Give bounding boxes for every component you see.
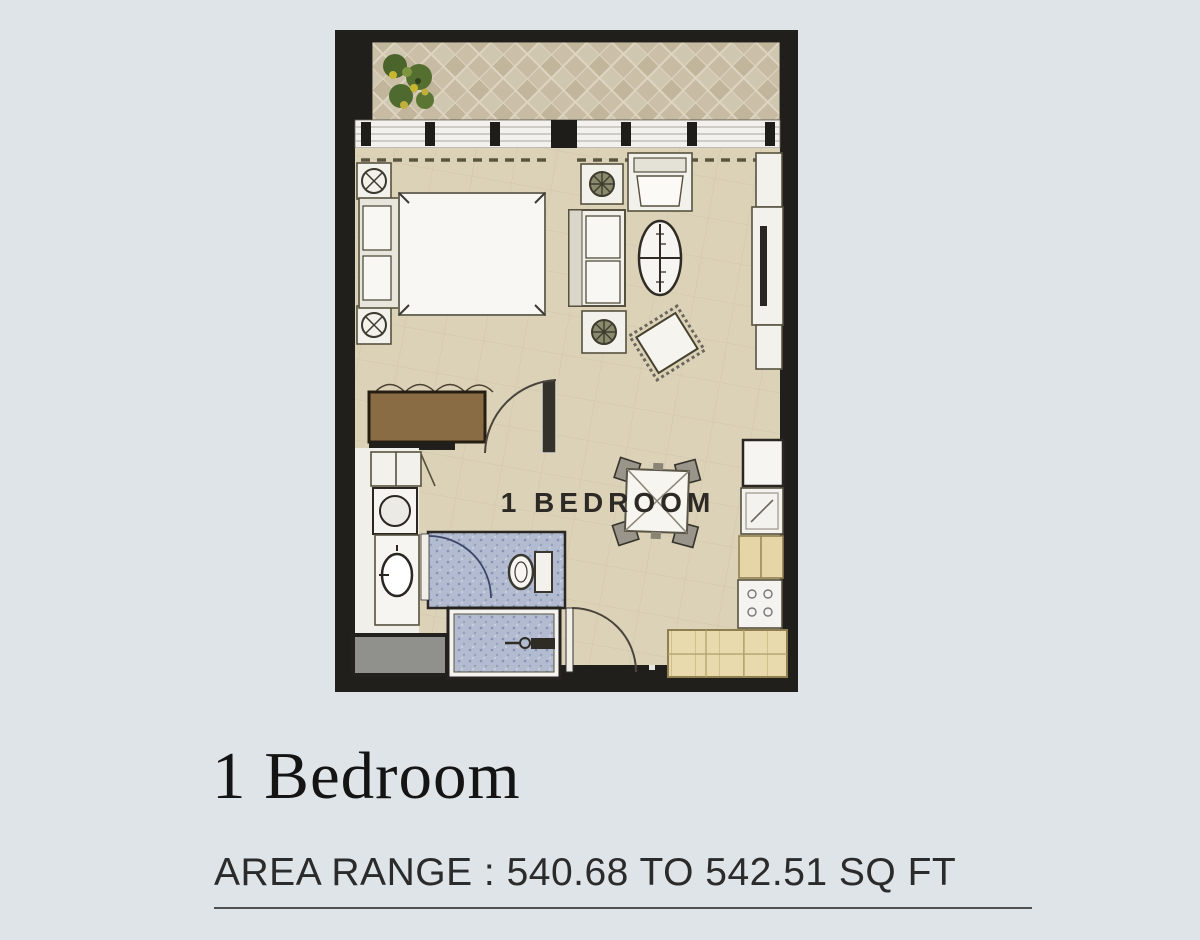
bed (399, 193, 545, 315)
armchair (628, 153, 692, 211)
wardrobe (369, 385, 493, 451)
pillow (363, 256, 391, 300)
washing-machine (373, 488, 417, 534)
unit-title: 1 Bedroom (212, 740, 521, 814)
kitchen-sink (741, 488, 783, 534)
plan-room-label: 1 BEDROOM (501, 487, 716, 518)
kitchen-counter (668, 630, 787, 677)
shower-room (448, 608, 560, 678)
plant-icon (591, 319, 617, 345)
balcony (372, 42, 780, 120)
brochure-page: 1 BEDROOM 1 Bedroom AREA RANGE : 540.68 … (0, 0, 1200, 940)
sofa (569, 210, 625, 306)
service-unit (353, 635, 447, 675)
cooktop (738, 580, 782, 628)
area-range-text: AREA RANGE : 540.68 TO 542.51 SQ FT (214, 851, 956, 895)
window-wall (355, 120, 780, 148)
plant-icon (589, 171, 615, 197)
tv-unit (752, 153, 783, 369)
bathroom (421, 532, 565, 608)
wash-basin (375, 535, 419, 625)
pillow (363, 206, 391, 250)
divider-line (214, 907, 1032, 909)
floorplan-image: 1 BEDROOM (335, 30, 798, 692)
kitchen-cabinet (739, 536, 783, 578)
coffee-table (639, 221, 681, 295)
fridge (743, 440, 783, 486)
